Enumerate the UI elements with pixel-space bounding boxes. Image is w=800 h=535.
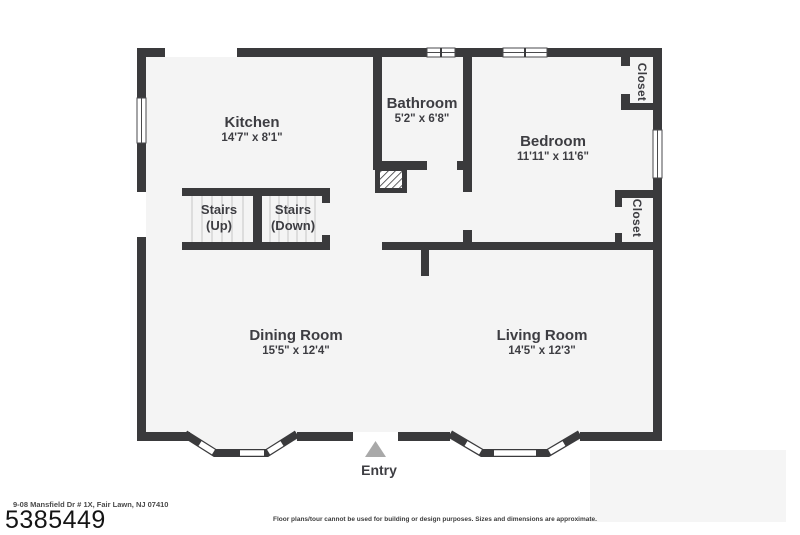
closet1-label: Closet (635, 63, 649, 101)
stairs-line1: Stairs (201, 202, 237, 217)
disclaimer: Floor plans/tour cannot be used for buil… (273, 516, 597, 523)
room-dimensions: 14'7" x 8'1" (221, 131, 282, 146)
entry-label: Entry (361, 462, 397, 478)
closet2-label: Closet (630, 199, 644, 237)
room-dimensions: 5'2" x 6'8" (387, 112, 458, 127)
room-dimensions: 11'11" x 11'6" (517, 150, 589, 165)
room-name: Bedroom (517, 133, 589, 150)
room-name: Kitchen (221, 114, 282, 131)
bedroom-label: Bedroom 11'11" x 11'6" (517, 133, 589, 165)
room-dimensions: 15'5" x 12'4" (249, 344, 342, 359)
room-name: Dining Room (249, 327, 342, 344)
kitchen-label: Kitchen 14'7" x 8'1" (221, 114, 282, 146)
watermark-box (590, 450, 786, 522)
listing-id: 5385449 (5, 506, 106, 535)
living-room-label: Living Room 14'5" x 12'3" (497, 327, 588, 359)
room-name: Bathroom (387, 95, 458, 112)
room-dimensions: 14'5" x 12'3" (497, 344, 588, 359)
stairs-line2: (Up) (206, 218, 232, 233)
bathroom-label: Bathroom 5'2" x 6'8" (387, 95, 458, 127)
stairs-down-label: Stairs (Down) (271, 202, 315, 234)
dining-room-label: Dining Room 15'5" x 12'4" (249, 327, 342, 359)
stairs-line2: (Down) (271, 218, 315, 233)
stairs-up-label: Stairs (Up) (201, 202, 237, 234)
room-name: Living Room (497, 327, 588, 344)
stairs-line1: Stairs (275, 202, 311, 217)
label-overlay: Kitchen 14'7" x 8'1" Bathroom 5'2" x 6'8… (0, 0, 800, 533)
